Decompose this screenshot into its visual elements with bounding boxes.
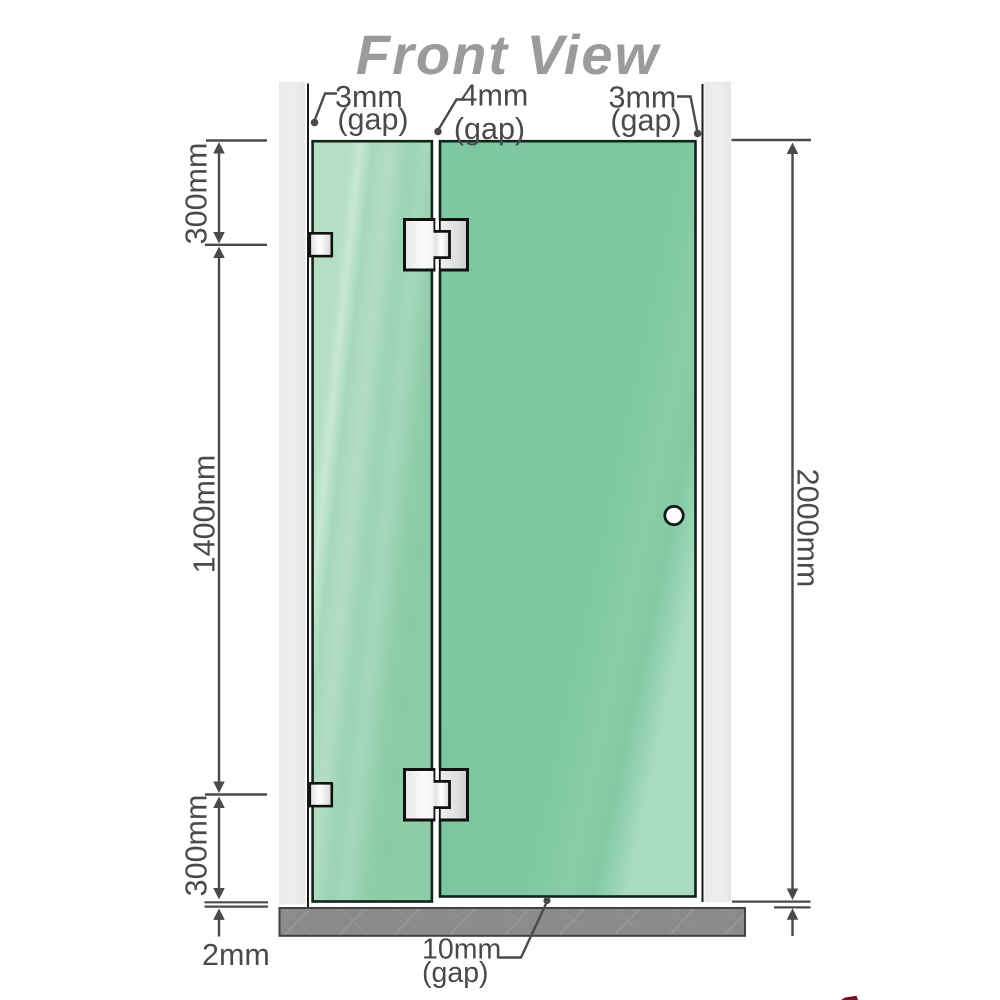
svg-text:300mm: 300mm [180, 795, 214, 897]
svg-text:4mm: 4mm [461, 79, 529, 113]
svg-text:300mm: 300mm [180, 143, 214, 245]
svg-text:Front View: Front View [356, 23, 662, 86]
svg-text:(gap): (gap) [422, 957, 489, 989]
svg-text:(gap): (gap) [337, 103, 408, 137]
svg-text:(gap): (gap) [610, 104, 681, 138]
svg-text:1400mm: 1400mm [188, 455, 222, 574]
svg-text:2000mm: 2000mm [791, 469, 825, 588]
svg-text:(gap): (gap) [454, 112, 525, 146]
svg-text:2mm: 2mm [202, 938, 270, 972]
